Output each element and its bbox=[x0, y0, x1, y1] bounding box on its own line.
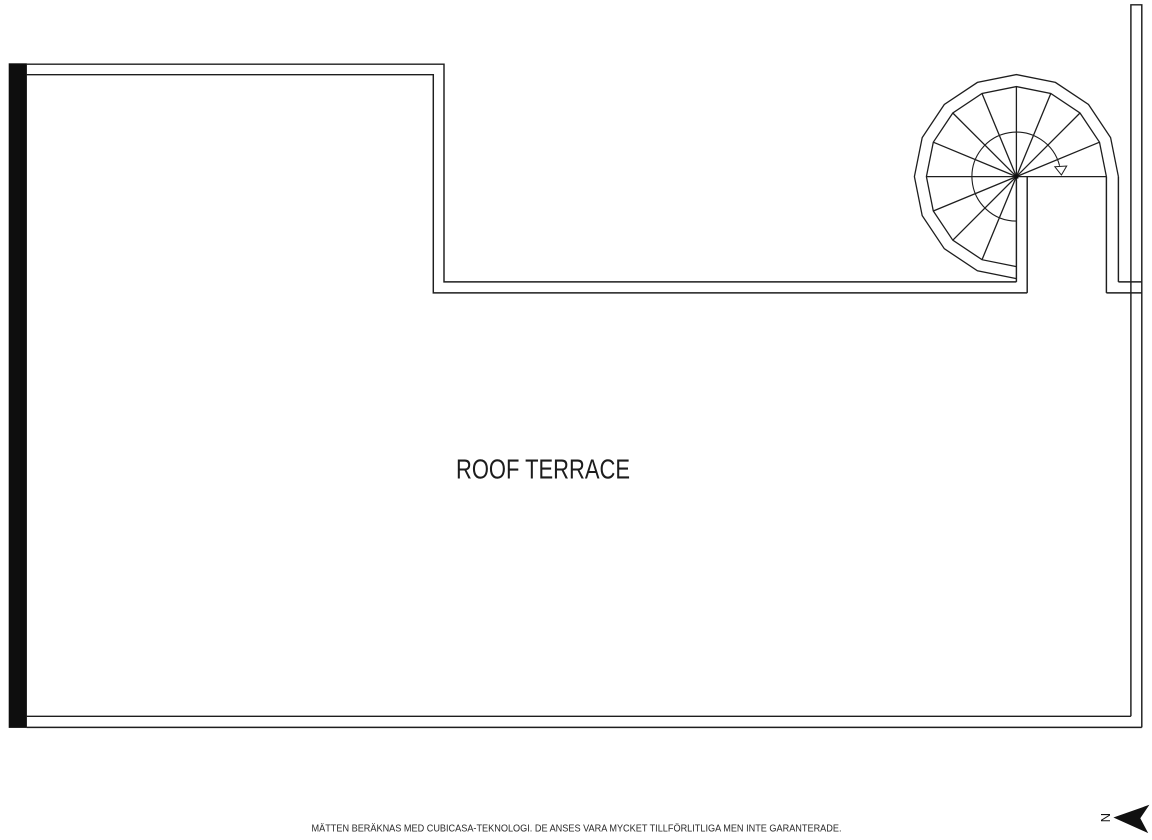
svg-text:N: N bbox=[1098, 813, 1113, 822]
svg-text:MÄTTEN BERÄKNAS MED CUBICASA-T: MÄTTEN BERÄKNAS MED CUBICASA-TEKNOLOGI. … bbox=[312, 823, 842, 835]
svg-text:ROOF TERRACE: ROOF TERRACE bbox=[456, 452, 630, 484]
